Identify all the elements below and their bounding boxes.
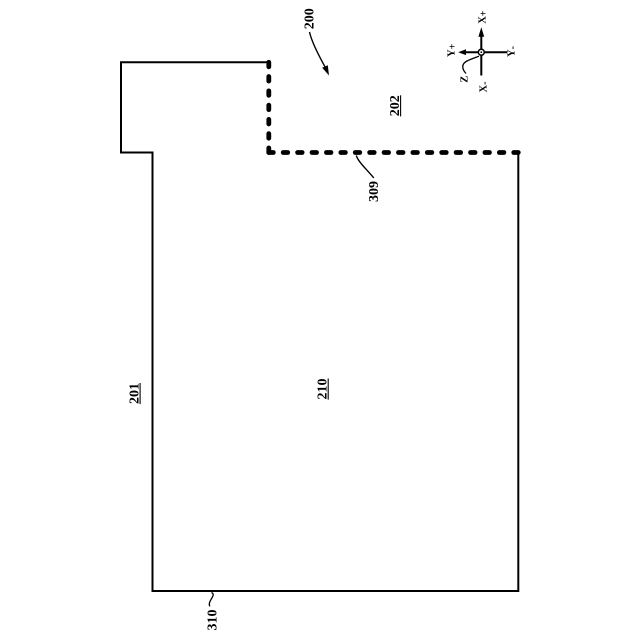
svg-text:310: 310 xyxy=(205,610,220,631)
svg-text:Y+: Y+ xyxy=(447,43,459,57)
svg-text:Z: Z xyxy=(460,76,471,83)
svg-text:Y-: Y- xyxy=(507,46,519,57)
svg-text:200: 200 xyxy=(303,8,318,29)
svg-text:X-: X- xyxy=(478,82,490,93)
svg-text:X+: X+ xyxy=(477,10,489,24)
svg-text:309: 309 xyxy=(367,181,382,202)
